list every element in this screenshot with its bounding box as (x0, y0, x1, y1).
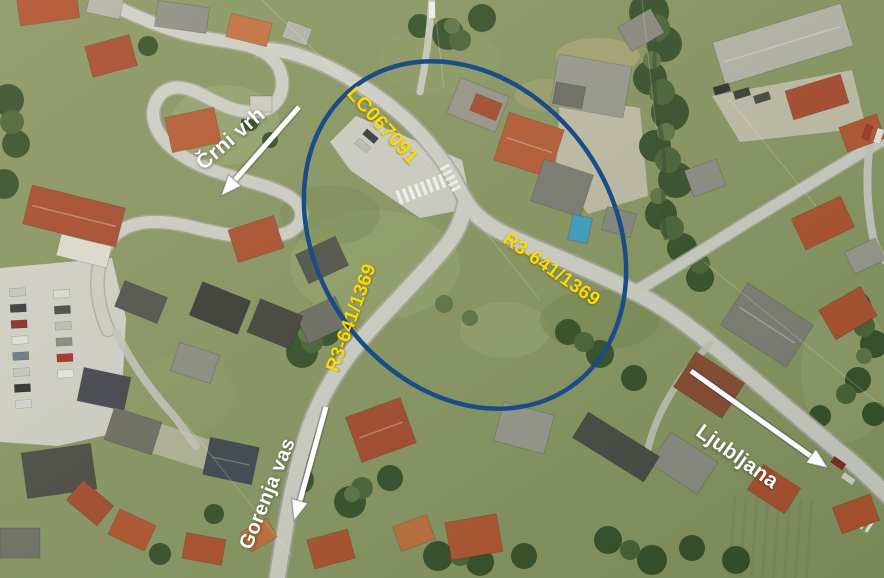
aerial-photo-background (0, 0, 884, 578)
aerial-map: Črni vrh LC067091 R3-641/1369 R3-641/136… (0, 0, 884, 578)
